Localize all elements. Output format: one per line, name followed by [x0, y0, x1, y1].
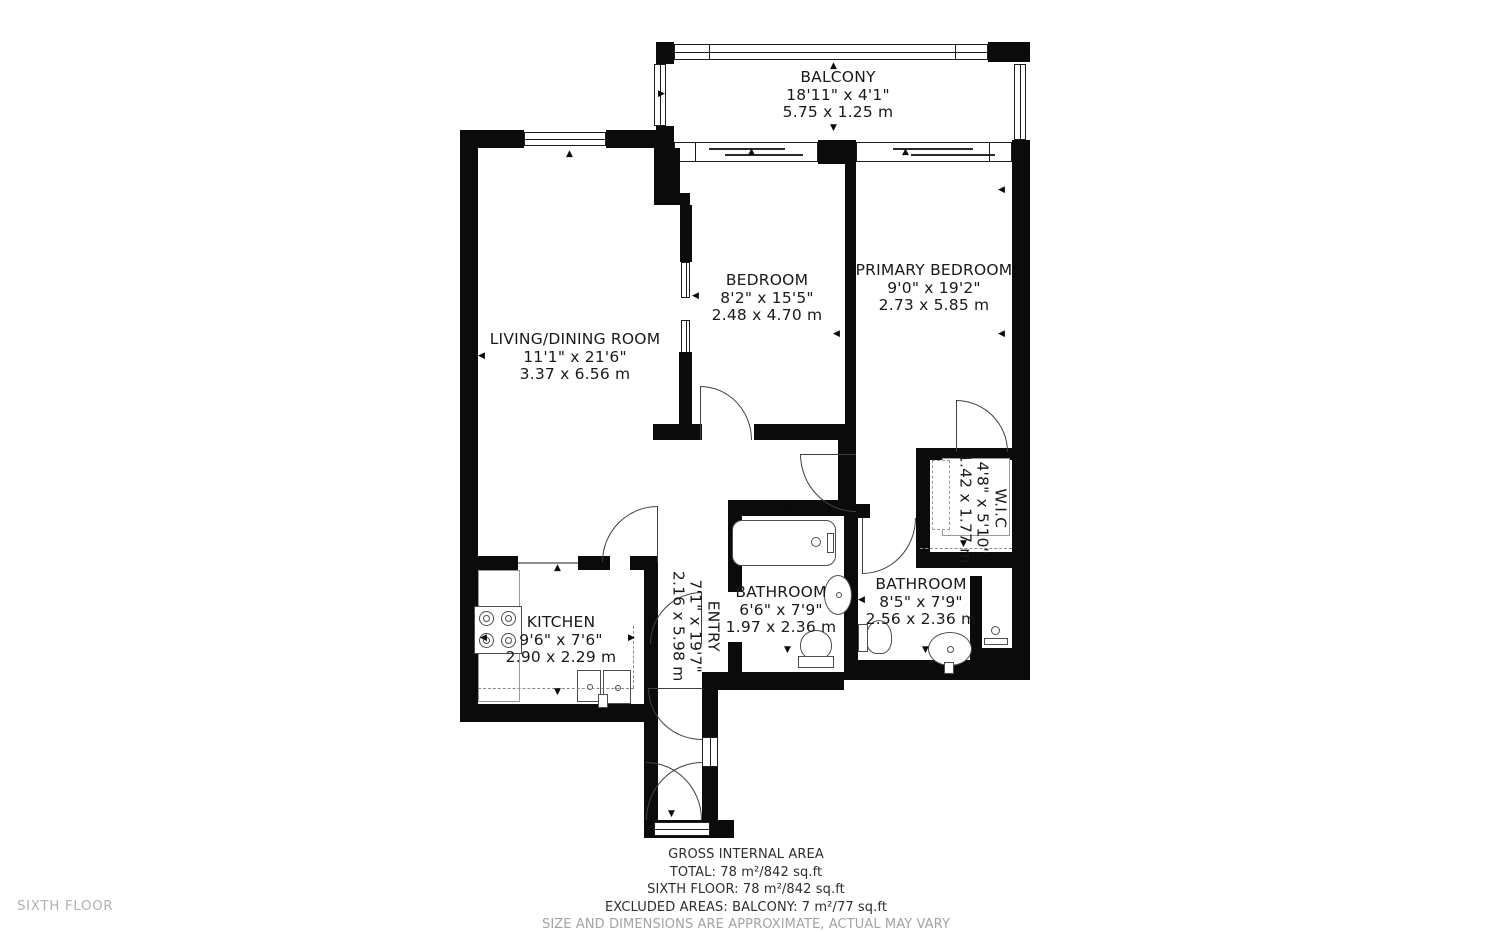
- room-label-wic: W.I.C 4'8" x 5'10" 1.42 x 1.77 m: [956, 433, 1009, 583]
- room-dim-imperial: 4'8" x 5'10": [973, 433, 991, 583]
- sliding-door-panel: [709, 148, 785, 150]
- toilet-tank: [798, 656, 834, 668]
- room-label-kitchen: KITCHEN 9'6" x 7'6" 2.90 x 2.29 m: [472, 614, 650, 667]
- dimension-arrow: ◀: [833, 330, 840, 339]
- dimension-arrow: ◀: [998, 330, 1005, 339]
- room-label-primary-bedroom: PRIMARY BEDROOM 9'0" x 19'2" 2.73 x 5.85…: [844, 262, 1024, 315]
- entrance-door-sill: [654, 822, 710, 836]
- wall-segment: [988, 42, 1030, 62]
- closet-shelf: [932, 460, 950, 530]
- room-label-entry: ENTRY 7'1" x 19'7" 2.16 x 5.98 m: [669, 531, 722, 721]
- dimension-arrow: ▼: [922, 646, 929, 655]
- wall-segment: [664, 193, 690, 205]
- window: [524, 132, 606, 146]
- floor-label: SIXTH FLOOR: [17, 898, 113, 914]
- room-dim-metric: 1.42 x 1.77 m: [956, 433, 974, 583]
- room-dim-imperial: 7'1" x 19'7": [686, 531, 704, 721]
- sink-tap: [598, 694, 608, 708]
- excluded-areas: EXCLUDED AREAS: BALCONY: 7 m²/77 sq.ft: [446, 899, 1046, 917]
- bathtub-fixture: [732, 520, 836, 566]
- door-sill: [702, 737, 718, 767]
- room-dim-imperial: 8'2" x 15'5": [678, 290, 856, 308]
- window-divider: [955, 45, 956, 59]
- sink-tap: [944, 662, 954, 674]
- window: [674, 44, 988, 60]
- dimension-arrow: ▼: [830, 124, 837, 133]
- wall-segment: [1012, 150, 1030, 680]
- room-label-bedroom: BEDROOM 8'2" x 15'5" 2.48 x 4.70 m: [678, 272, 856, 325]
- room-dim-metric: 2.16 x 5.98 m: [669, 531, 687, 721]
- wall-segment: [978, 648, 1030, 662]
- disclaimer: SIZE AND DIMENSIONS ARE APPROXIMATE, ACT…: [446, 916, 1046, 932]
- sink-drain: [947, 646, 954, 653]
- bathtub-drain: [811, 537, 821, 547]
- room-dim-imperial: 8'5" x 7'9": [832, 594, 1010, 612]
- dimension-arrow: ▲: [784, 502, 791, 511]
- room-dim-metric: 3.37 x 6.56 m: [465, 366, 685, 384]
- room-name: W.I.C: [991, 433, 1009, 583]
- room-dim-imperial: 18'11" x 4'1": [700, 87, 976, 105]
- room-dim-metric: 2.90 x 2.29 m: [472, 649, 650, 667]
- dimension-arrow: ▼: [554, 688, 561, 697]
- dimension-arrow: ▲: [748, 148, 755, 157]
- dimension-arrow: ▲: [902, 148, 909, 157]
- sliding-door-panel: [911, 154, 995, 156]
- room-name: BALCONY: [700, 69, 976, 87]
- room-name: KITCHEN: [472, 614, 650, 632]
- room-dim-imperial: 9'6" x 7'6": [472, 632, 650, 650]
- wall-segment: [460, 130, 524, 148]
- dimension-arrow: ▲: [554, 564, 561, 573]
- wall-segment: [680, 205, 692, 262]
- room-label-bathroom2: BATHROOM 8'5" x 7'9" 2.56 x 2.36 m: [832, 576, 1010, 629]
- gross-internal-area-title: GROSS INTERNAL AREA: [446, 846, 1046, 864]
- wall-segment: [460, 704, 658, 722]
- room-name: LIVING/DINING ROOM: [465, 331, 685, 349]
- room-dim-metric: 2.73 x 5.85 m: [844, 297, 1024, 315]
- window: [1014, 64, 1026, 140]
- room-dim-imperial: 11'1" x 21'6": [465, 349, 685, 367]
- dimension-arrow: ▲: [566, 150, 573, 159]
- floor-area: SIXTH FLOOR: 78 m²/842 sq.ft: [446, 881, 1046, 899]
- room-dim-metric: 2.56 x 2.36 m: [832, 611, 1010, 629]
- window-divider: [695, 143, 696, 161]
- room-dim-metric: 5.75 x 1.25 m: [700, 104, 976, 122]
- wall-segment: [728, 642, 742, 676]
- door-arc-bathroom2: [862, 518, 916, 574]
- window-divider: [989, 143, 990, 161]
- sink-fixture: [928, 632, 972, 666]
- room-name: ENTRY: [704, 531, 722, 721]
- dimension-arrow: ◀: [998, 186, 1005, 195]
- wall-segment: [702, 672, 844, 690]
- floorplan-canvas: ▲ ▲ ▼ ▲ ▲ ▶ ◀ ◀ ◀ ◀ ◀ ▲ ▼ ◀ ▶ ▲ ▼ ◀ ▼ ▲ …: [0, 0, 1492, 932]
- wall-segment: [653, 424, 702, 440]
- radiator-fixture: [984, 638, 1008, 645]
- sink-drain: [587, 684, 593, 690]
- room-name: PRIMARY BEDROOM: [844, 262, 1024, 280]
- window-divider: [709, 45, 710, 59]
- room-dim-imperial: 9'0" x 19'2": [844, 280, 1024, 298]
- wall-segment: [754, 424, 845, 440]
- room-name: BEDROOM: [678, 272, 856, 290]
- counter-edge: [518, 562, 578, 564]
- room-dim-metric: 2.48 x 4.70 m: [678, 307, 856, 325]
- dimension-arrow: ▼: [784, 646, 791, 655]
- dimension-arrow: ▼: [668, 810, 675, 819]
- wall-segment: [856, 504, 870, 518]
- room-label-balcony: BALCONY 18'11" x 4'1" 5.75 x 1.25 m: [700, 69, 976, 122]
- sliding-door-panel: [725, 154, 803, 156]
- room-label-living: LIVING/DINING ROOM 11'1" x 21'6" 3.37 x …: [465, 331, 685, 384]
- wall-segment: [656, 42, 674, 64]
- bathtub-tap: [827, 533, 834, 553]
- area-summary: GROSS INTERNAL AREA TOTAL: 78 m²/842 sq.…: [446, 846, 1046, 932]
- door-arc-living-hall: [602, 506, 658, 562]
- dimension-arrow: ▶: [658, 90, 665, 99]
- room-name: BATHROOM: [832, 576, 1010, 594]
- sliding-door: [674, 142, 818, 162]
- wall-segment: [916, 448, 930, 568]
- door-arc-bedroom: [700, 386, 752, 440]
- total-area: TOTAL: 78 m²/842 sq.ft: [446, 864, 1046, 882]
- sliding-door: [856, 142, 1012, 162]
- wall-segment: [460, 556, 518, 570]
